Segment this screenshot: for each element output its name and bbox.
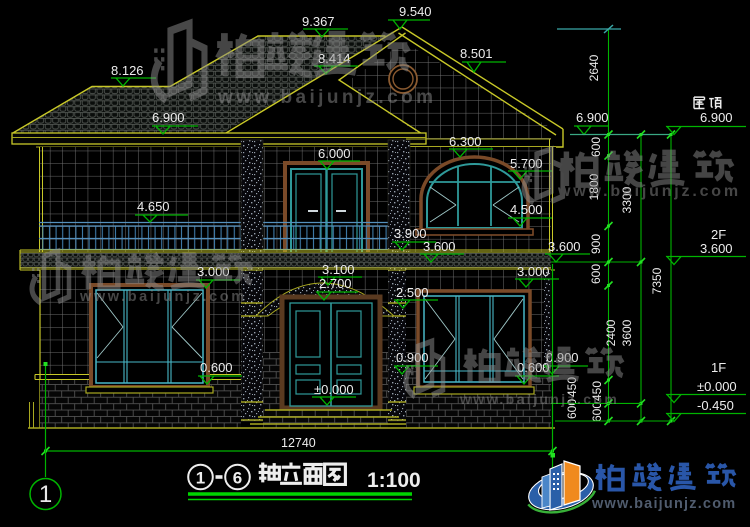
svg-text:www.baijunjz.com: www.baijunjz.com <box>591 496 736 512</box>
svg-text:1:100: 1:100 <box>367 469 421 492</box>
svg-text:www.baijunjz.com: www.baijunjz.com <box>459 391 619 407</box>
svg-text:www.baijunjz.com: www.baijunjz.com <box>217 87 436 108</box>
svg-text:www.baijunjz.com: www.baijunjz.com <box>79 289 247 305</box>
svg-text:3.600: 3.600 <box>548 239 581 254</box>
svg-text:1: 1 <box>196 469 205 488</box>
svg-text:3600: 3600 <box>620 319 634 346</box>
svg-text:9.367: 9.367 <box>302 14 335 29</box>
svg-text:3.000: 3.000 <box>517 264 550 279</box>
svg-text:2F: 2F <box>711 227 726 242</box>
svg-text:600: 600 <box>589 264 603 284</box>
svg-text:7350: 7350 <box>650 267 664 294</box>
svg-text:3.600: 3.600 <box>700 241 733 256</box>
svg-text:6.300: 6.300 <box>449 134 482 149</box>
svg-text:600: 600 <box>589 137 603 157</box>
svg-text:0.600: 0.600 <box>200 360 233 375</box>
svg-text:-0.450: -0.450 <box>697 398 734 413</box>
svg-text:900: 900 <box>589 234 603 254</box>
svg-text:6: 6 <box>233 469 242 488</box>
svg-text:0.900: 0.900 <box>396 350 429 365</box>
svg-text:3.900: 3.900 <box>394 226 427 241</box>
svg-text:±0.000: ±0.000 <box>697 379 737 394</box>
svg-text:1F: 1F <box>711 360 726 375</box>
svg-text:6.000: 6.000 <box>318 146 351 161</box>
svg-text:4.650: 4.650 <box>137 199 170 214</box>
svg-text:12740: 12740 <box>281 436 316 450</box>
svg-text:±0.000: ±0.000 <box>314 382 354 397</box>
svg-text:www.baijunjz.com: www.baijunjz.com <box>557 183 741 200</box>
svg-text:2.500: 2.500 <box>396 285 429 300</box>
svg-text:2400: 2400 <box>604 319 618 346</box>
svg-text:9.540: 9.540 <box>399 4 432 19</box>
svg-text:2.700: 2.700 <box>319 276 352 291</box>
svg-text:3.600: 3.600 <box>423 239 456 254</box>
svg-text:1: 1 <box>39 481 52 508</box>
svg-text:8.501: 8.501 <box>460 46 493 61</box>
svg-text:2640: 2640 <box>587 54 601 81</box>
svg-text:6.900: 6.900 <box>576 110 609 125</box>
svg-text:8.126: 8.126 <box>111 63 144 78</box>
svg-text:3.100: 3.100 <box>322 262 355 277</box>
svg-text:6.900: 6.900 <box>700 110 733 125</box>
svg-text:4.500: 4.500 <box>510 202 543 217</box>
svg-text:6.900: 6.900 <box>152 110 185 125</box>
